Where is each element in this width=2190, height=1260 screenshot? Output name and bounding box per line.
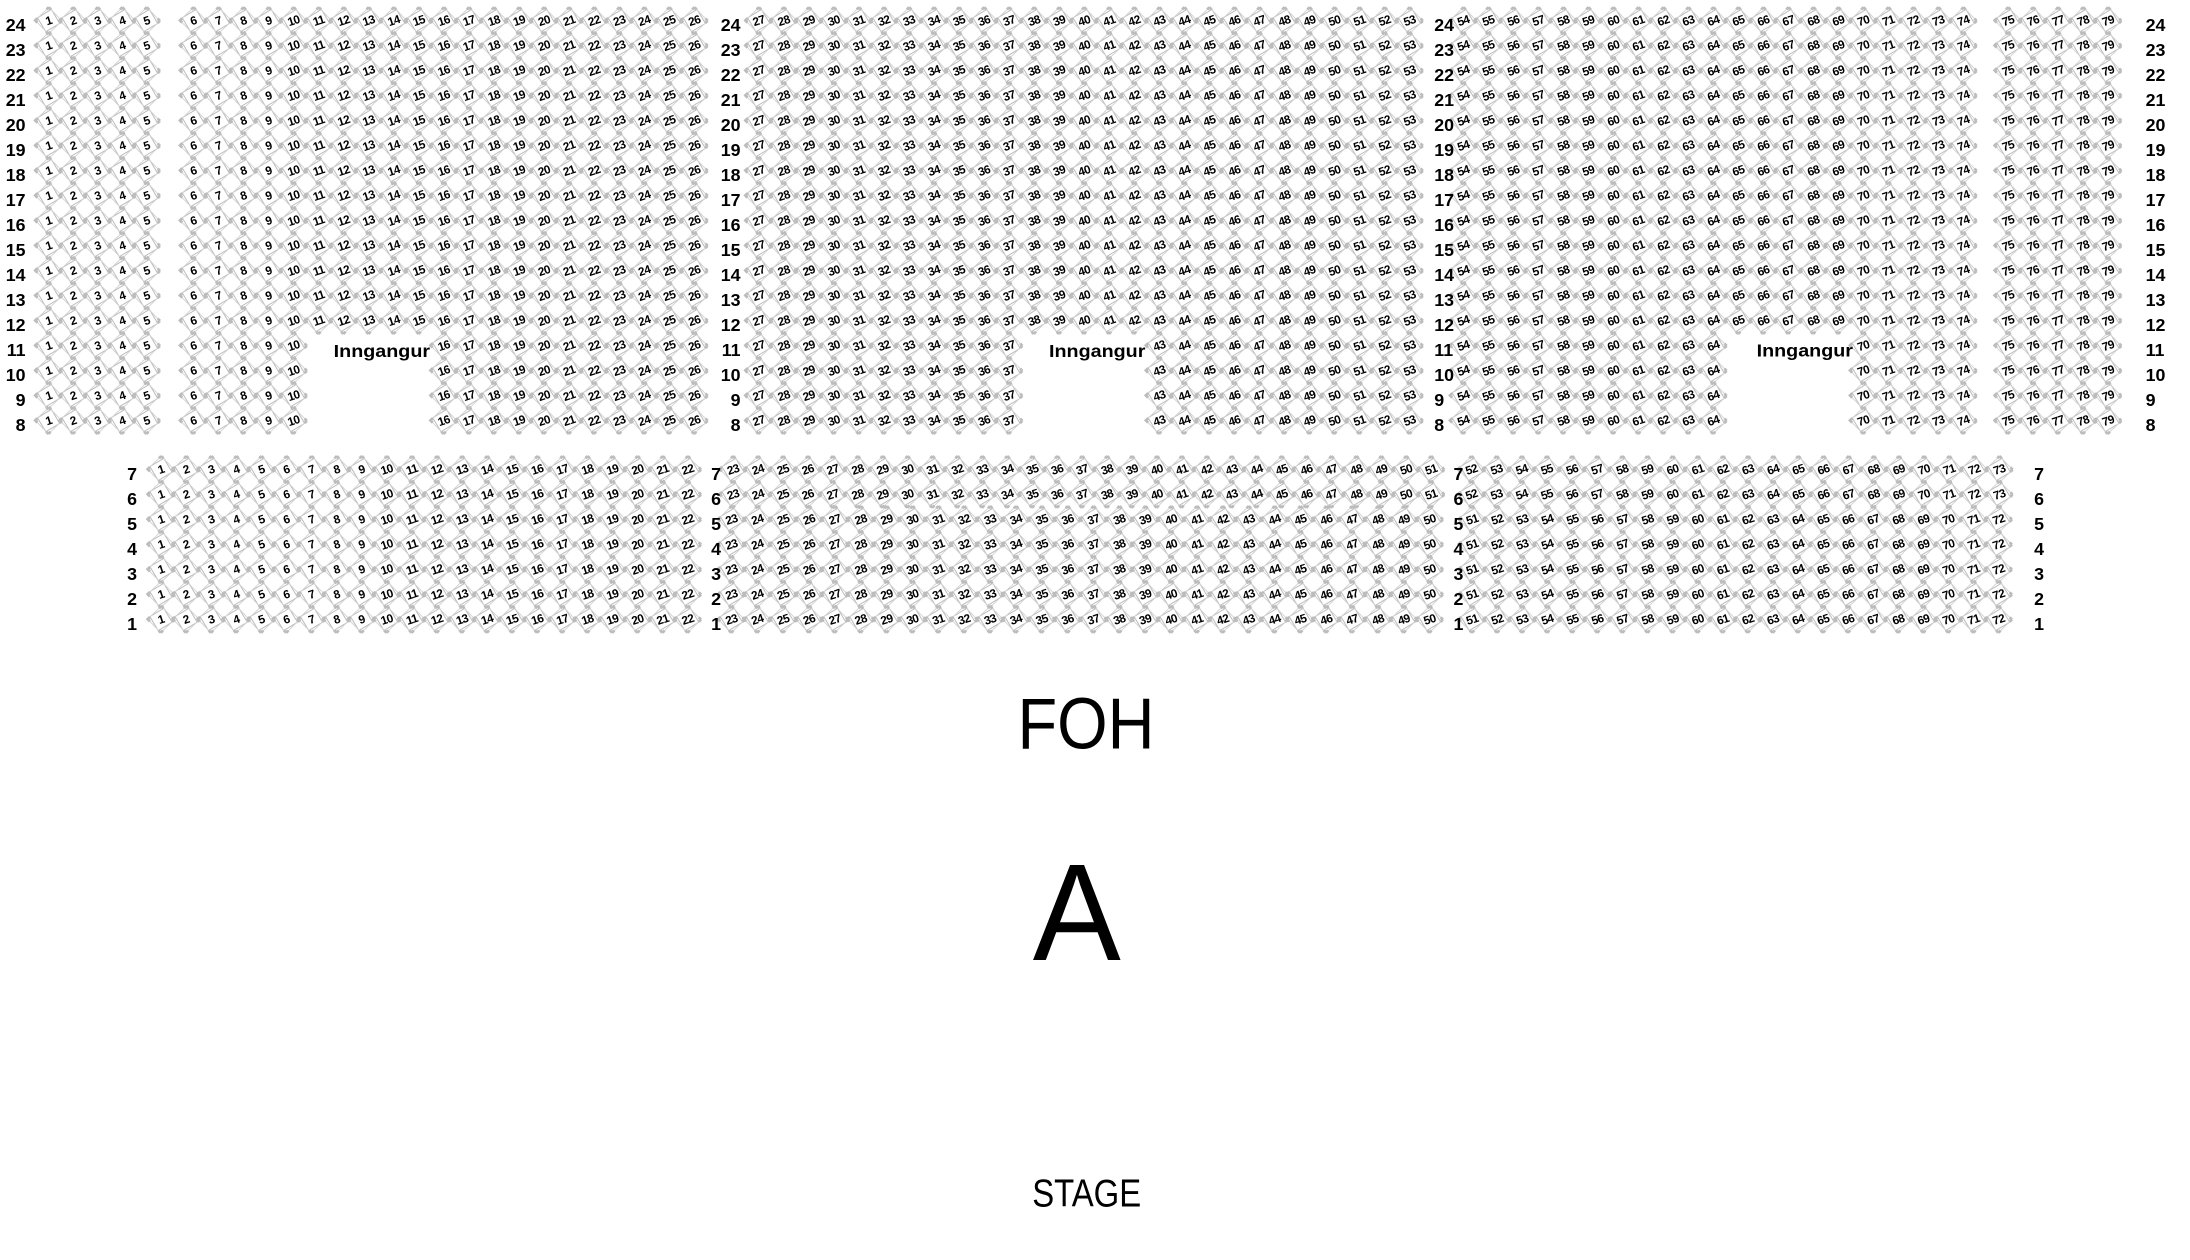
svg-text:20: 20: [6, 115, 26, 135]
svg-text:3: 3: [127, 564, 137, 584]
svg-text:20: 20: [1434, 115, 1454, 135]
svg-text:STAGE: STAGE: [1032, 1173, 1141, 1216]
svg-text:9: 9: [2146, 390, 2156, 410]
svg-text:7: 7: [2034, 464, 2044, 484]
svg-text:11: 11: [1434, 340, 1453, 360]
svg-text:9: 9: [16, 390, 26, 410]
svg-text:FOH: FOH: [1018, 684, 1155, 765]
svg-text:13: 13: [1434, 290, 1454, 310]
svg-text:21: 21: [721, 90, 741, 110]
svg-text:11: 11: [722, 340, 741, 360]
svg-text:4: 4: [711, 539, 721, 559]
svg-text:16: 16: [721, 215, 741, 235]
svg-text:24: 24: [2146, 15, 2166, 35]
svg-text:13: 13: [2146, 290, 2166, 310]
svg-text:21: 21: [1434, 90, 1454, 110]
svg-text:2: 2: [711, 589, 721, 609]
svg-text:8: 8: [1434, 415, 1444, 435]
svg-text:5: 5: [711, 514, 721, 534]
svg-text:12: 12: [6, 315, 26, 335]
svg-text:3: 3: [1454, 564, 1464, 584]
svg-text:8: 8: [2146, 415, 2156, 435]
svg-text:2: 2: [1454, 589, 1464, 609]
svg-text:6: 6: [2034, 489, 2044, 509]
svg-text:14: 14: [721, 265, 741, 285]
svg-text:7: 7: [127, 464, 137, 484]
svg-text:5: 5: [127, 514, 137, 534]
svg-text:18: 18: [6, 165, 26, 185]
svg-text:1: 1: [127, 614, 137, 634]
svg-text:16: 16: [1434, 215, 1454, 235]
svg-text:14: 14: [1434, 265, 1454, 285]
svg-text:1: 1: [1454, 614, 1464, 634]
svg-text:10: 10: [721, 365, 741, 385]
svg-text:6: 6: [127, 489, 137, 509]
svg-text:Inngangur: Inngangur: [1757, 341, 1854, 361]
svg-text:15: 15: [1434, 240, 1454, 260]
svg-text:6: 6: [1454, 489, 1464, 509]
svg-text:24: 24: [1434, 15, 1454, 35]
svg-text:Inngangur: Inngangur: [1049, 341, 1146, 361]
svg-text:4: 4: [2034, 539, 2044, 559]
svg-text:22: 22: [6, 65, 26, 85]
svg-text:22: 22: [721, 65, 741, 85]
svg-text:21: 21: [6, 90, 26, 110]
svg-text:3: 3: [711, 564, 721, 584]
svg-text:10: 10: [6, 365, 26, 385]
svg-text:16: 16: [2146, 215, 2166, 235]
svg-text:18: 18: [2146, 165, 2166, 185]
svg-text:24: 24: [721, 15, 741, 35]
svg-text:10: 10: [2146, 365, 2166, 385]
svg-text:8: 8: [16, 415, 26, 435]
svg-text:7: 7: [711, 464, 721, 484]
svg-text:18: 18: [1434, 165, 1454, 185]
svg-text:6: 6: [711, 489, 721, 509]
svg-text:22: 22: [1434, 65, 1454, 85]
svg-text:2: 2: [127, 589, 137, 609]
svg-text:23: 23: [2146, 40, 2166, 60]
svg-text:20: 20: [721, 115, 741, 135]
svg-text:5: 5: [2034, 514, 2044, 534]
svg-text:15: 15: [2146, 240, 2166, 260]
svg-text:9: 9: [1434, 390, 1444, 410]
svg-text:13: 13: [6, 290, 26, 310]
svg-text:19: 19: [1434, 140, 1454, 160]
svg-text:A: A: [1033, 836, 1121, 990]
svg-text:13: 13: [721, 290, 741, 310]
svg-text:12: 12: [1434, 315, 1454, 335]
svg-text:Inngangur: Inngangur: [334, 341, 431, 361]
svg-text:19: 19: [721, 140, 741, 160]
svg-text:11: 11: [2146, 340, 2165, 360]
svg-text:17: 17: [1434, 190, 1454, 210]
svg-text:15: 15: [721, 240, 741, 260]
svg-text:5: 5: [1454, 514, 1464, 534]
svg-text:4: 4: [1454, 539, 1464, 559]
svg-text:14: 14: [6, 265, 26, 285]
svg-text:23: 23: [6, 40, 26, 60]
svg-text:22: 22: [2146, 65, 2166, 85]
svg-text:11: 11: [7, 340, 26, 360]
svg-text:21: 21: [2146, 90, 2166, 110]
svg-text:12: 12: [721, 315, 741, 335]
svg-text:2: 2: [2034, 589, 2044, 609]
svg-text:9: 9: [731, 390, 741, 410]
svg-text:1: 1: [2034, 614, 2044, 634]
svg-text:23: 23: [721, 40, 741, 60]
svg-text:8: 8: [731, 415, 741, 435]
svg-text:17: 17: [6, 190, 26, 210]
svg-text:24: 24: [6, 15, 26, 35]
svg-text:10: 10: [1434, 365, 1454, 385]
svg-text:20: 20: [2146, 115, 2166, 135]
svg-text:3: 3: [2034, 564, 2044, 584]
svg-text:19: 19: [2146, 140, 2166, 160]
svg-text:4: 4: [127, 539, 137, 559]
svg-text:15: 15: [6, 240, 26, 260]
svg-text:19: 19: [6, 140, 26, 160]
svg-text:7: 7: [1454, 464, 1464, 484]
svg-text:14: 14: [2146, 265, 2166, 285]
svg-text:17: 17: [721, 190, 741, 210]
svg-text:1: 1: [711, 614, 721, 634]
svg-text:16: 16: [6, 215, 26, 235]
svg-text:12: 12: [2146, 315, 2166, 335]
svg-text:17: 17: [2146, 190, 2166, 210]
svg-text:23: 23: [1434, 40, 1454, 60]
svg-text:18: 18: [721, 165, 741, 185]
